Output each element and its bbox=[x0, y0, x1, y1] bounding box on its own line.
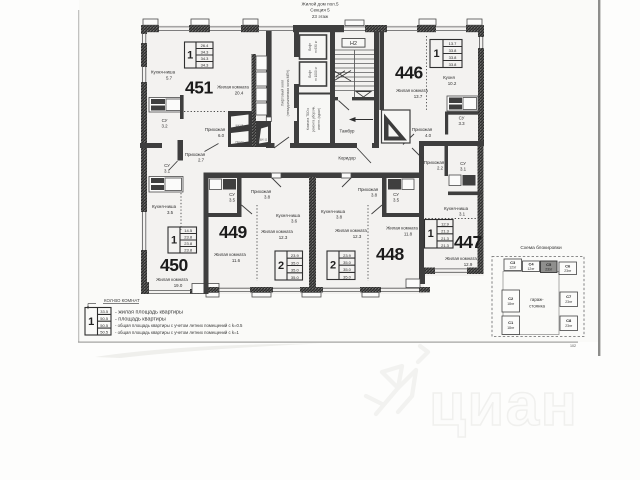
svg-text:448: 448 bbox=[376, 244, 404, 264]
svg-text:23эт: 23эт bbox=[545, 268, 552, 272]
svg-text:СУ: СУ bbox=[162, 118, 168, 123]
svg-text:Лифт: Лифт bbox=[308, 70, 312, 78]
svg-text:449: 449 bbox=[219, 222, 247, 242]
svg-text:3.8: 3.8 bbox=[371, 193, 378, 198]
svg-text:19.0: 19.0 bbox=[174, 283, 183, 288]
svg-text:12.3: 12.3 bbox=[353, 234, 362, 239]
svg-text:Н2: Н2 bbox=[350, 41, 357, 47]
svg-text:ШК-11: ШК-11 bbox=[260, 138, 268, 142]
svg-text:12.9: 12.9 bbox=[464, 262, 473, 267]
svg-text:Жилая комната: Жилая комната bbox=[217, 85, 249, 90]
svg-text:35.0: 35.0 bbox=[291, 275, 300, 280]
svg-text:3.5: 3.5 bbox=[167, 210, 174, 215]
svg-text:33.8: 33.8 bbox=[449, 55, 458, 60]
svg-text:35.0: 35.0 bbox=[343, 267, 352, 272]
svg-text:50.5: 50.5 bbox=[100, 323, 109, 328]
svg-text:3.1: 3.1 bbox=[459, 212, 466, 217]
svg-text:Кухня-ниша: Кухня-ниша bbox=[444, 206, 469, 211]
svg-text:34.3: 34.3 bbox=[201, 50, 210, 55]
svg-text:50.5: 50.5 bbox=[100, 316, 109, 321]
svg-text:(незадымляемая зона МГН): (незадымляемая зона МГН) bbox=[286, 70, 290, 117]
svg-text:Прихожая: Прихожая bbox=[412, 127, 433, 132]
svg-text:- жилая площадь квартиры: - жилая площадь квартиры bbox=[115, 310, 183, 316]
svg-text:6.0: 6.0 bbox=[218, 133, 225, 138]
svg-text:Кухня-ниша: Кухня-ниша bbox=[276, 213, 301, 218]
svg-text:2: 2 bbox=[330, 260, 336, 272]
svg-text:13.7: 13.7 bbox=[414, 94, 423, 99]
svg-text:23.9: 23.9 bbox=[343, 253, 352, 258]
svg-text:1: 1 bbox=[428, 228, 434, 240]
svg-text:11.6: 11.6 bbox=[232, 258, 241, 263]
svg-text:Кухня: Кухня bbox=[443, 75, 455, 80]
svg-text:18эт: 18эт bbox=[507, 302, 514, 306]
svg-text:23эт: 23эт bbox=[564, 269, 571, 273]
svg-text:3.1: 3.1 bbox=[164, 169, 171, 174]
svg-text:КОЛ-ВО КОМНАТ: КОЛ-ВО КОМНАТ bbox=[104, 298, 140, 303]
svg-text:3.2: 3.2 bbox=[161, 124, 168, 129]
svg-text:Секция 5: Секция 5 bbox=[310, 8, 330, 13]
svg-text:Жилая комната: Жилая комната bbox=[386, 226, 418, 231]
svg-text:Жилая комната: Жилая комната bbox=[261, 229, 293, 234]
svg-text:Прихожая: Прихожая bbox=[205, 127, 226, 132]
svg-text:- общая площадь квартиры с уче: - общая площадь квартиры с учетом летних… bbox=[115, 323, 243, 328]
svg-text:Лифт: Лифт bbox=[308, 43, 312, 51]
svg-text:23.8: 23.8 bbox=[184, 248, 193, 253]
svg-text:гп 630 кг: гп 630 кг bbox=[314, 40, 318, 53]
svg-text:Прихожая: Прихожая bbox=[251, 189, 272, 194]
svg-text:446: 446 bbox=[395, 63, 423, 83]
svg-text:21.3: 21.3 bbox=[441, 229, 450, 234]
svg-text:14.5: 14.5 bbox=[184, 228, 193, 233]
svg-text:Жилая комната: Жилая комната bbox=[445, 256, 477, 261]
svg-text:18эт: 18эт bbox=[507, 326, 514, 330]
svg-text:3.5: 3.5 bbox=[229, 198, 236, 203]
svg-text:ПШ-02: ПШ-02 bbox=[236, 140, 245, 144]
svg-text:Коридор: Коридор bbox=[338, 156, 356, 161]
svg-text:2.7: 2.7 bbox=[198, 158, 205, 163]
svg-text:23эт: 23эт bbox=[565, 300, 572, 304]
svg-text:33.8: 33.8 bbox=[449, 62, 458, 67]
svg-text:33.5: 33.5 bbox=[100, 309, 109, 314]
svg-text:СУ: СУ bbox=[229, 192, 235, 197]
svg-text:- площадь квартиры: - площадь квартиры bbox=[115, 316, 166, 322]
svg-text:12.3: 12.3 bbox=[279, 235, 288, 240]
svg-text:34.3: 34.3 bbox=[201, 56, 210, 61]
svg-text:1: 1 bbox=[171, 235, 177, 247]
svg-text:23.8: 23.8 bbox=[184, 241, 193, 246]
svg-text:Кухня-ниша: Кухня-ниша bbox=[152, 204, 177, 209]
svg-text:2.2: 2.2 bbox=[437, 166, 444, 171]
svg-text:С2: С2 bbox=[508, 296, 514, 301]
svg-text:102: 102 bbox=[570, 344, 576, 348]
svg-text:35.0: 35.0 bbox=[343, 274, 352, 279]
svg-text:33.8: 33.8 bbox=[449, 48, 458, 53]
svg-text:СУ: СУ bbox=[164, 163, 170, 168]
svg-text:5.7: 5.7 bbox=[166, 76, 173, 81]
svg-text:450: 450 bbox=[160, 255, 188, 275]
svg-text:Жилая комната: Жилая комната bbox=[156, 277, 188, 282]
svg-text:1: 1 bbox=[88, 316, 94, 328]
svg-text:50.5: 50.5 bbox=[100, 330, 109, 335]
svg-text:СУ: СУ bbox=[393, 192, 399, 197]
svg-text:ремонта уборочн.: ремонта уборочн. bbox=[312, 106, 316, 132]
svg-text:4.0: 4.0 bbox=[425, 133, 432, 138]
svg-text:ШК-05: ШК-05 bbox=[236, 124, 244, 128]
svg-text:Жилая комната: Жилая комната bbox=[396, 88, 428, 93]
svg-text:С1: С1 bbox=[508, 320, 514, 325]
svg-text:21.3: 21.3 bbox=[441, 243, 450, 248]
svg-text:гп 1000 кг: гп 1000 кг bbox=[314, 66, 318, 81]
svg-text:С8: С8 bbox=[566, 318, 572, 323]
svg-text:3.1: 3.1 bbox=[460, 167, 467, 172]
svg-text:10.2: 10.2 bbox=[448, 81, 457, 86]
svg-text:12эт: 12эт bbox=[509, 266, 516, 270]
svg-text:447: 447 bbox=[454, 232, 482, 252]
svg-text:С5: С5 bbox=[546, 262, 552, 267]
svg-text:циан: циан bbox=[429, 371, 578, 438]
svg-text:СУ: СУ bbox=[460, 161, 466, 166]
svg-text:3.3: 3.3 bbox=[458, 121, 465, 126]
svg-text:23.8: 23.8 bbox=[184, 235, 193, 240]
svg-text:гараж-: гараж- bbox=[530, 297, 544, 302]
svg-text:С7: С7 bbox=[566, 294, 572, 299]
svg-text:Жилая комната: Жилая комната bbox=[214, 252, 246, 257]
svg-text:- общая площадь квартиры с уче: - общая площадь квартиры с учетом летних… bbox=[115, 330, 239, 335]
svg-text:Жилой дом пол.5: Жилой дом пол.5 bbox=[301, 0, 339, 6]
svg-text:26.4: 26.4 bbox=[201, 43, 210, 48]
svg-text:21.3: 21.3 bbox=[441, 236, 450, 241]
svg-text:С6: С6 bbox=[565, 263, 571, 268]
svg-text:34.3: 34.3 bbox=[201, 63, 210, 68]
svg-text:3.8: 3.8 bbox=[336, 215, 343, 220]
svg-text:Прихожая: Прихожая bbox=[424, 160, 445, 165]
svg-text:23 этаж: 23 этаж bbox=[312, 14, 329, 19]
svg-text:3.6: 3.6 bbox=[291, 219, 298, 224]
svg-text:Прихожая: Прихожая bbox=[185, 152, 206, 157]
svg-text:Тамбур: Тамбур bbox=[340, 129, 355, 134]
svg-text:инвент. (идакп): инвент. (идакп) bbox=[317, 108, 321, 130]
svg-text:12эт: 12эт bbox=[528, 267, 535, 271]
svg-text:3.8: 3.8 bbox=[264, 195, 271, 200]
svg-text:Схема блокировки: Схема блокировки bbox=[520, 245, 562, 251]
svg-text:451: 451 bbox=[185, 78, 213, 98]
svg-text:1: 1 bbox=[187, 50, 193, 62]
svg-text:Кухня-ниша: Кухня-ниша bbox=[321, 209, 346, 214]
svg-text:12.9: 12.9 bbox=[441, 221, 450, 226]
svg-text:23.9: 23.9 bbox=[291, 253, 300, 258]
svg-text:35.0: 35.0 bbox=[343, 260, 352, 265]
svg-text:1: 1 bbox=[433, 48, 439, 60]
svg-text:35.0: 35.0 bbox=[291, 260, 300, 265]
svg-text:С4: С4 bbox=[528, 262, 534, 267]
svg-text:11.8: 11.8 bbox=[404, 232, 413, 237]
svg-text:Лифтовый холл: Лифтовый холл bbox=[281, 80, 285, 106]
svg-text:СУ: СУ bbox=[459, 116, 465, 121]
svg-text:35.0: 35.0 bbox=[291, 268, 300, 273]
svg-text:стоянка: стоянка bbox=[529, 304, 545, 309]
svg-text:Жилая комната: Жилая комната bbox=[335, 228, 367, 233]
svg-text:Прихожая: Прихожая bbox=[358, 187, 379, 192]
svg-text:2: 2 bbox=[278, 260, 284, 272]
svg-text:13.7: 13.7 bbox=[449, 41, 458, 46]
svg-text:Комната ТБО и: Комната ТБО и bbox=[306, 108, 310, 131]
svg-text:Кухня-ниша: Кухня-ниша bbox=[151, 70, 176, 75]
svg-text:С3: С3 bbox=[510, 260, 516, 265]
svg-text:20.4: 20.4 bbox=[235, 91, 244, 96]
svg-text:3.5: 3.5 bbox=[393, 198, 400, 203]
svg-text:23эт: 23эт bbox=[565, 324, 572, 328]
